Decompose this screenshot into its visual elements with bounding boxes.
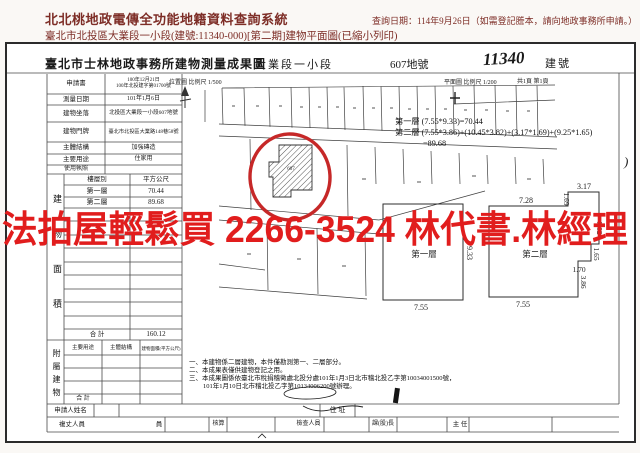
watermark-overlay: 法拍屋輕鬆買 2266-3524 林代書.林經理 bbox=[2, 199, 614, 253]
floor-total-label: 合 計 bbox=[64, 329, 130, 340]
building-number-handwritten: 11340 bbox=[483, 48, 526, 70]
info-value-line2: 100年北投建字第01700號 bbox=[105, 84, 182, 90]
official-label: 員 bbox=[153, 417, 165, 432]
floor2-dim-r4: 1.70 bbox=[572, 265, 585, 274]
system-title: 北北桃地政電傳全功能地籍資料查詢系統 bbox=[45, 9, 288, 28]
area-col-header: 平方公尺 bbox=[130, 174, 182, 185]
building-footprint bbox=[269, 145, 312, 197]
address-label: 住 址 bbox=[320, 404, 355, 417]
info-label: 建物門牌 bbox=[47, 122, 105, 142]
info-label: 主要用途 bbox=[47, 154, 105, 165]
info-value bbox=[105, 165, 182, 174]
annex-col-structure: 主體結構 bbox=[102, 342, 140, 355]
building-number-label: 建號 bbox=[545, 55, 571, 71]
calc-line1: 第一層 (7.55*9.33)=70.44 bbox=[395, 116, 592, 127]
official-label: 主 任 bbox=[449, 417, 471, 432]
info-label: 主體結構 bbox=[47, 142, 105, 154]
official-label: 檢查人員 bbox=[293, 417, 324, 432]
info-value: 北投區大業段一小段607地號 bbox=[105, 105, 182, 122]
info-value: 100年12月21日 100年北投建字第01700號 bbox=[105, 75, 182, 89]
note-line: 一、本建物係二層建物，本件僅勘測第一、二層部分。 bbox=[189, 359, 456, 367]
official-label: 課(股)長 bbox=[369, 417, 397, 432]
floor-total-value: 160.12 bbox=[130, 329, 182, 340]
info-label: 建物坐落 bbox=[47, 105, 105, 122]
lot-number-label: 607 bbox=[287, 167, 295, 172]
info-label: 測量日期 bbox=[47, 94, 105, 105]
info-value: 101年1月6日 bbox=[105, 94, 182, 105]
notes: 一、本建物係二層建物，本件僅勘測第一、二層部分。 二、本成果表僅供建物登記之用。… bbox=[189, 359, 456, 391]
info-label: 使用執照 bbox=[47, 165, 105, 174]
annex-col-area: 建物面積(平方公尺) bbox=[140, 343, 182, 355]
floor-col-header: 樓層別 bbox=[64, 174, 130, 185]
calc-line2: 第二層 (7.55*3.86)+(10.45*3.82)+(3.17*1.69)… bbox=[395, 127, 592, 138]
floor2-dim-top-right: 3.17 bbox=[577, 182, 591, 191]
page-count: 共1頁 第1頁 bbox=[517, 76, 549, 85]
floor2-dim-bottom: 7.55 bbox=[516, 300, 530, 309]
form-title: 臺北市士林地政事務所建物測量成果圖 bbox=[45, 55, 266, 72]
query-date: 查詢日期：114年9月26日（如需登記謄本，請向地政事務所申請。） bbox=[372, 14, 637, 27]
note-line: 101年1月10日北市稽北投乙字第10134006200號辦理。 bbox=[203, 383, 456, 391]
info-value: 臺北市北投區大業路148巷58號 bbox=[105, 122, 182, 142]
floor1-dim-width: 7.55 bbox=[414, 303, 428, 312]
info-value: 加強磚造 bbox=[105, 142, 182, 154]
calc-line3: =89.68 bbox=[423, 138, 592, 149]
annex-total-label: 合 計 bbox=[64, 394, 102, 404]
official-label: 複丈人員 bbox=[49, 417, 95, 432]
section-name: 大業段一小段 bbox=[255, 56, 333, 72]
annex-col-use: 主要用途 bbox=[64, 342, 102, 355]
official-label: 核算 bbox=[210, 417, 227, 432]
floor-row-name: 第一層 bbox=[64, 185, 130, 197]
margin-mark: ) bbox=[624, 154, 628, 170]
info-label: 申請書 bbox=[47, 74, 105, 94]
land-number: 607地號 bbox=[390, 56, 429, 72]
floor2-dim-r5: 3.86 bbox=[579, 275, 588, 288]
applicant-label: 申請人姓名 bbox=[47, 404, 94, 417]
page: 北北桃地政電傳全功能地籍資料查詢系統 查詢日期：114年9月26日（如需登記謄本… bbox=[0, 0, 640, 453]
floor-row-area: 70.44 bbox=[130, 185, 182, 197]
document-subtitle: 臺北市北投區大業段一小段(建號:11340-000)[第二期]建物平面圖(已縮小… bbox=[45, 28, 398, 43]
note-line: 二、本成果表僅供建物登記之用。 bbox=[189, 367, 456, 375]
floor-plan-scale: 平面圖 比例尺 1/200 bbox=[444, 77, 497, 86]
note-line: 三、本成果圖係依臺北市稅捐稽徵處北投分處101年1月3日北市稽北投乙字第1003… bbox=[189, 375, 456, 383]
annex-side-label: 附屬建物 bbox=[51, 349, 62, 401]
info-value: 住家用 bbox=[105, 154, 182, 165]
area-calculations: 第一層 (7.55*9.33)=70.44 第二層 (7.55*3.86)+(1… bbox=[395, 116, 592, 149]
